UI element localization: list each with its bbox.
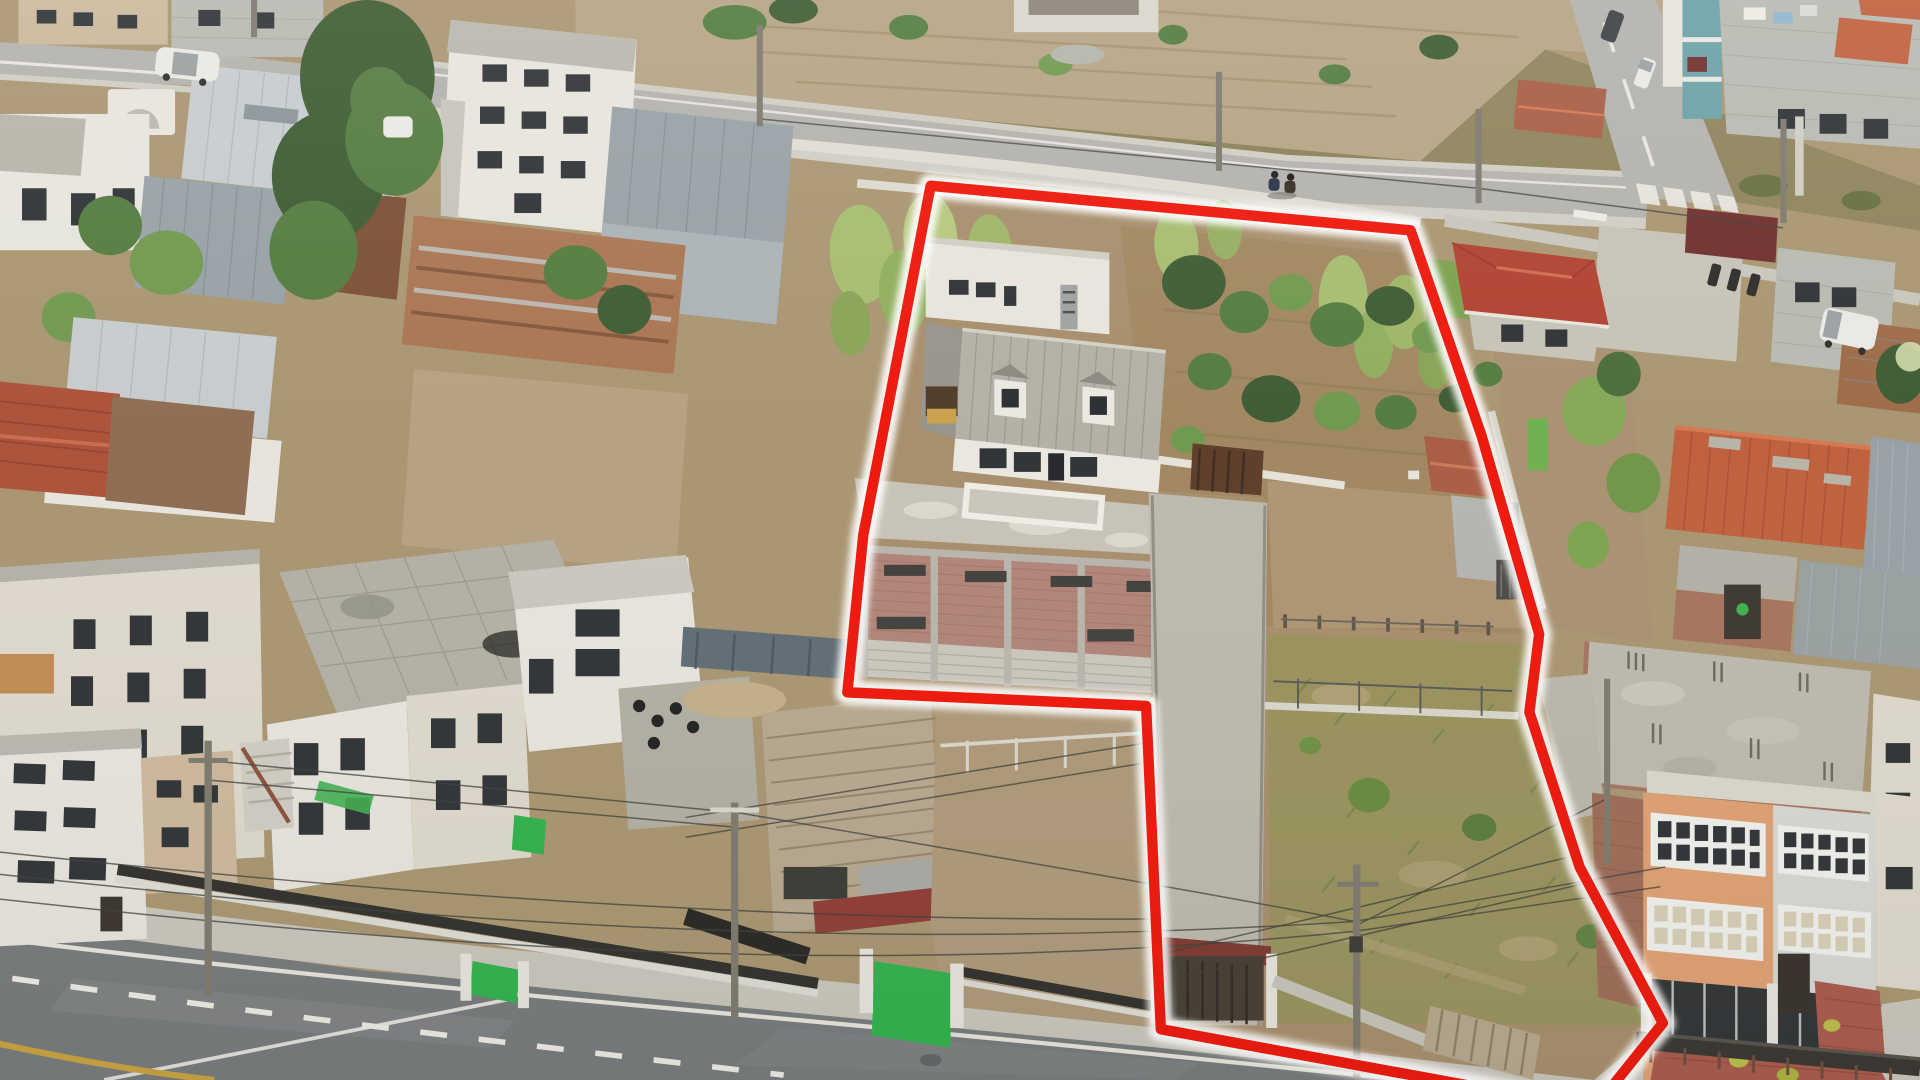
photo-haze	[0, 0, 1920, 1080]
screenshot-root	[0, 0, 1920, 1080]
aerial-photo	[0, 0, 1920, 1080]
